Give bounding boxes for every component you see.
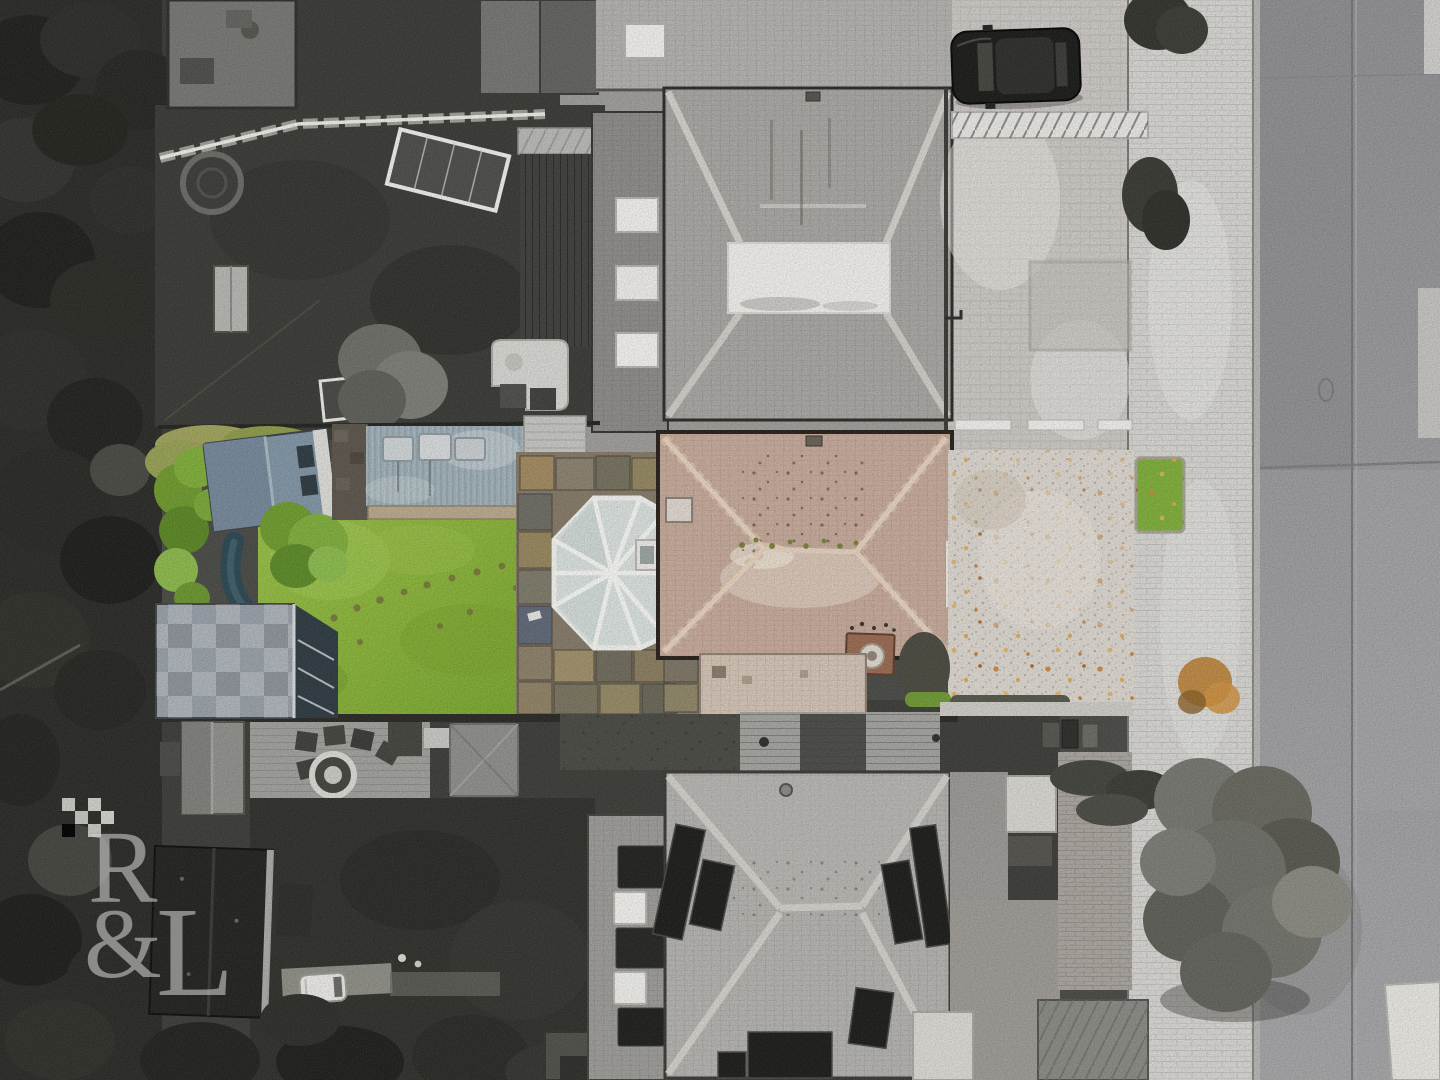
aerial-photo-canvas bbox=[0, 0, 1440, 1080]
aerial-photo: R & L bbox=[0, 0, 1440, 1080]
grain-light bbox=[0, 0, 1440, 1080]
